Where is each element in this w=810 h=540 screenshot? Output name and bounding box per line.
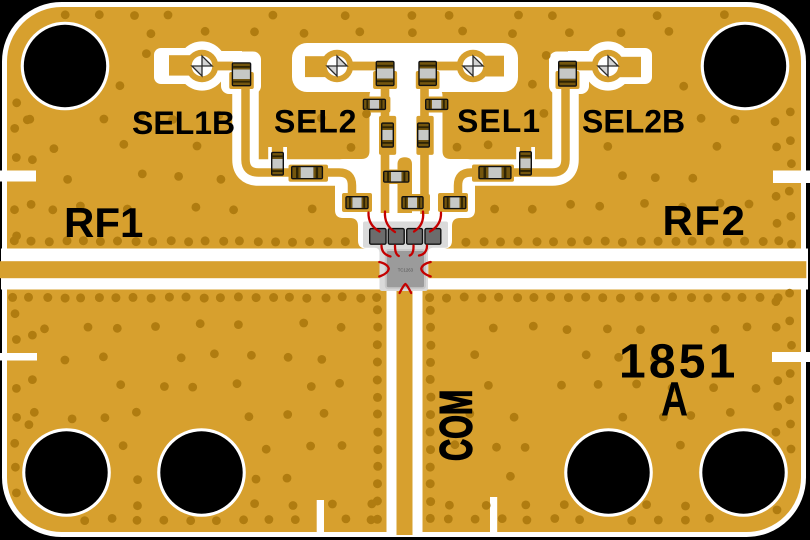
- svg-text:RF1: RF1: [64, 199, 143, 246]
- svg-text:SEL2B: SEL2B: [582, 104, 685, 140]
- svg-text:SEL1B: SEL1B: [132, 105, 235, 141]
- svg-text:RF2: RF2: [663, 197, 747, 244]
- svg-text:TC1263: TC1263: [398, 268, 414, 273]
- svg-text:A: A: [661, 373, 688, 427]
- svg-text:COM: COM: [432, 390, 482, 461]
- svg-text:SEL2: SEL2: [274, 104, 357, 140]
- svg-text:SEL1: SEL1: [457, 103, 541, 139]
